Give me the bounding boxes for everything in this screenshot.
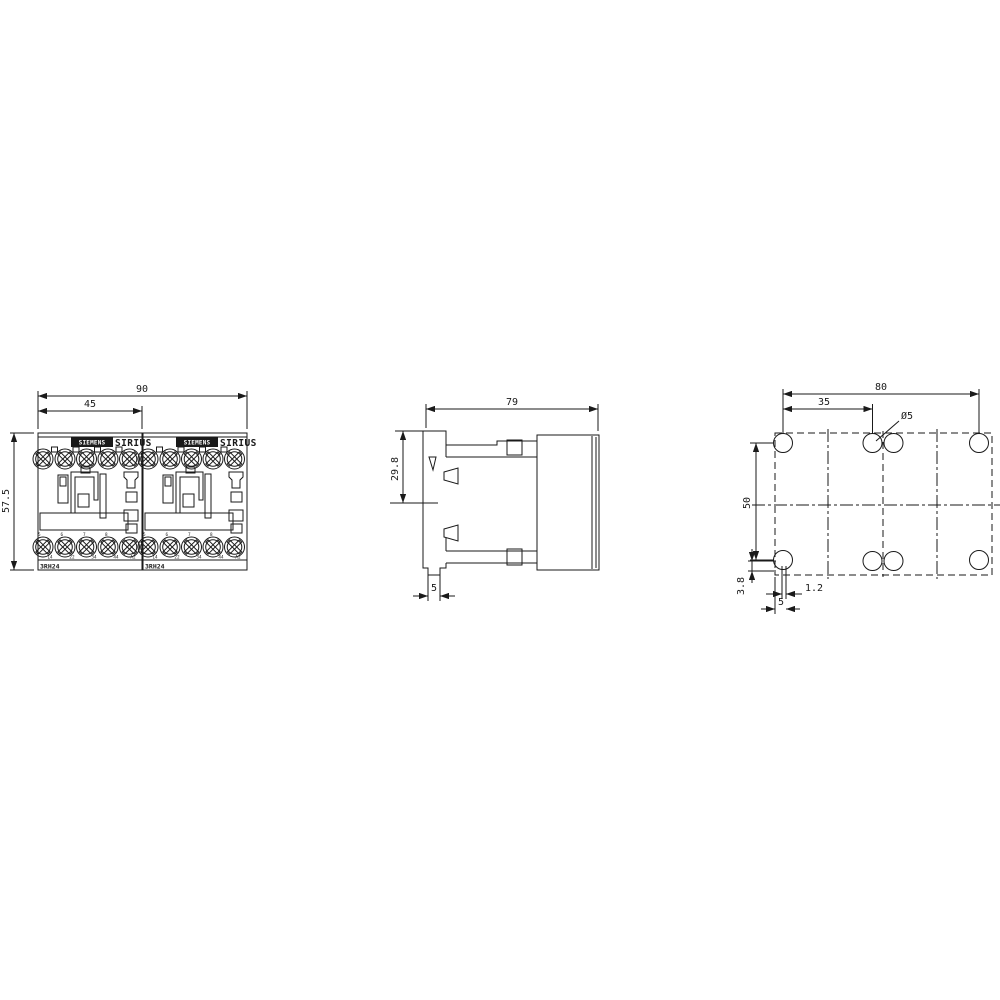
side-view: 79 29.8 5 [390,397,599,601]
dim-hole-span: 80 [875,382,887,393]
terminal-number: 7 [83,532,86,538]
series-label: SIRIUS [115,438,152,449]
terminal-label: 44 [218,555,224,561]
dim-width-total: 90 [136,384,148,395]
contactor-module-graphics [136,433,247,570]
drill-plan-view: 80 35 Ø5 50 3.8 1.2 [736,382,1000,614]
terminal-label: A2 [130,555,136,561]
mounting-hole [970,551,989,570]
dim-edge-offset-h: 5 [778,597,784,608]
model-label: 3RH24 [145,563,165,571]
dim-hole-diameter: Ø5 [901,410,913,422]
series-label: SIRIUS [220,438,257,449]
mounting-hole [884,434,903,453]
technical-drawing: SIEMENS SIRIUS 3RH24 5 6 7 8 14 22 34 44… [0,0,1000,1000]
dim-rail-offset: 29.8 [390,457,401,481]
terminal-label: 22 [174,555,180,561]
dim-vertical-pitch: 50 [742,497,753,509]
terminal-number: 5 [38,532,41,538]
mounting-hole [863,434,882,453]
dim-foot-width: 5 [431,583,437,594]
dim-height: 57.5 [1,489,12,513]
terminal-label: 34 [196,555,202,561]
terminal-label: 14 [152,555,158,561]
terminal-number: 8 [210,532,213,538]
terminal-number: 8 [105,532,108,538]
drawing-canvas: SIEMENS SIRIUS 3RH24 5 6 7 8 14 22 34 44… [0,0,1000,1000]
dim-hole-pitch: 35 [818,397,830,408]
dim-width-module: 45 [84,399,96,410]
terminal-number: 5 [143,532,146,538]
terminal-number: 7 [188,532,191,538]
mounting-hole [774,434,793,453]
brand-badge: SIEMENS [184,440,211,447]
dim-depth: 79 [506,397,518,408]
dim-center-offset: 1.2 [805,583,823,594]
mounting-hole [863,552,882,571]
mounting-hole [970,434,989,453]
contactor-module-graphics [31,433,142,570]
model-label: 3RH24 [40,563,60,571]
terminal-label: 22 [69,555,75,561]
front-view: SIEMENS SIRIUS 3RH24 5 6 7 8 14 22 34 44… [1,384,257,571]
terminal-number: 6 [61,532,64,538]
terminal-number: 6 [166,532,169,538]
terminal-label: 34 [91,555,97,561]
terminal-label: A2 [235,555,241,561]
terminal-label: 44 [113,555,119,561]
dim-edge-offset-v: 3.8 [736,577,747,595]
drill-plan-dimensions: 80 35 Ø5 50 3.8 1.2 [736,382,979,614]
terminal-label: 14 [47,555,53,561]
mounting-hole [884,552,903,571]
brand-badge: SIEMENS [79,440,106,447]
mounting-hole [774,551,793,570]
